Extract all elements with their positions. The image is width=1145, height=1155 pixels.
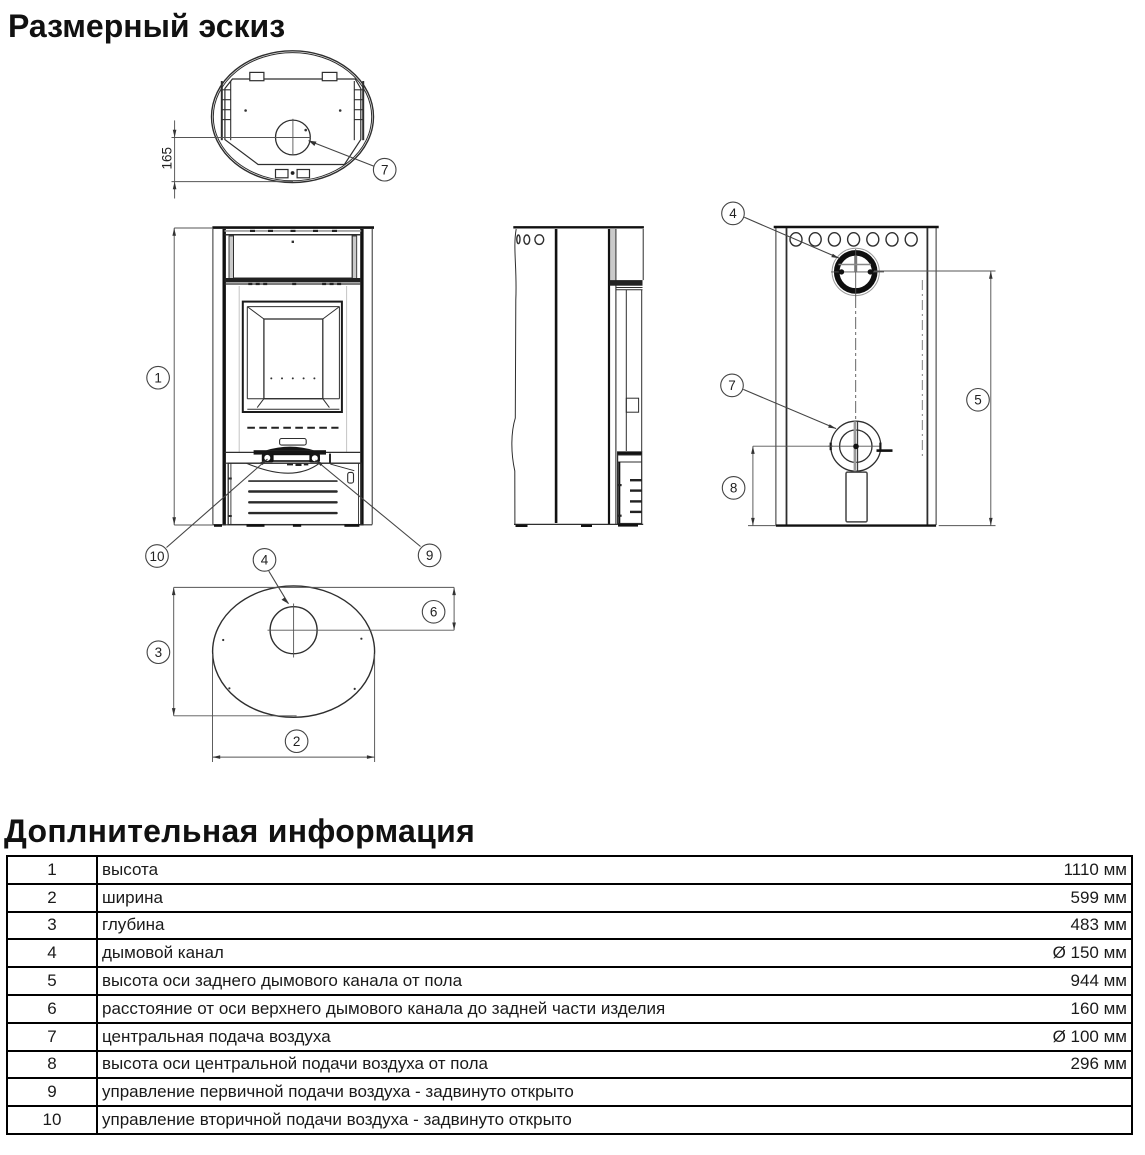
svg-text:165: 165 xyxy=(160,147,175,170)
svg-text:1: 1 xyxy=(154,371,162,386)
svg-text:4: 4 xyxy=(261,553,269,568)
svg-text:3: 3 xyxy=(155,645,163,660)
svg-text:2: 2 xyxy=(293,734,301,749)
svg-text:8: 8 xyxy=(730,481,738,496)
svg-text:6: 6 xyxy=(430,605,438,620)
svg-text:7: 7 xyxy=(381,163,389,178)
svg-text:9: 9 xyxy=(426,548,434,563)
svg-text:4: 4 xyxy=(729,206,737,221)
svg-text:5: 5 xyxy=(974,393,982,408)
svg-text:10: 10 xyxy=(149,549,164,564)
svg-text:7: 7 xyxy=(728,378,736,393)
